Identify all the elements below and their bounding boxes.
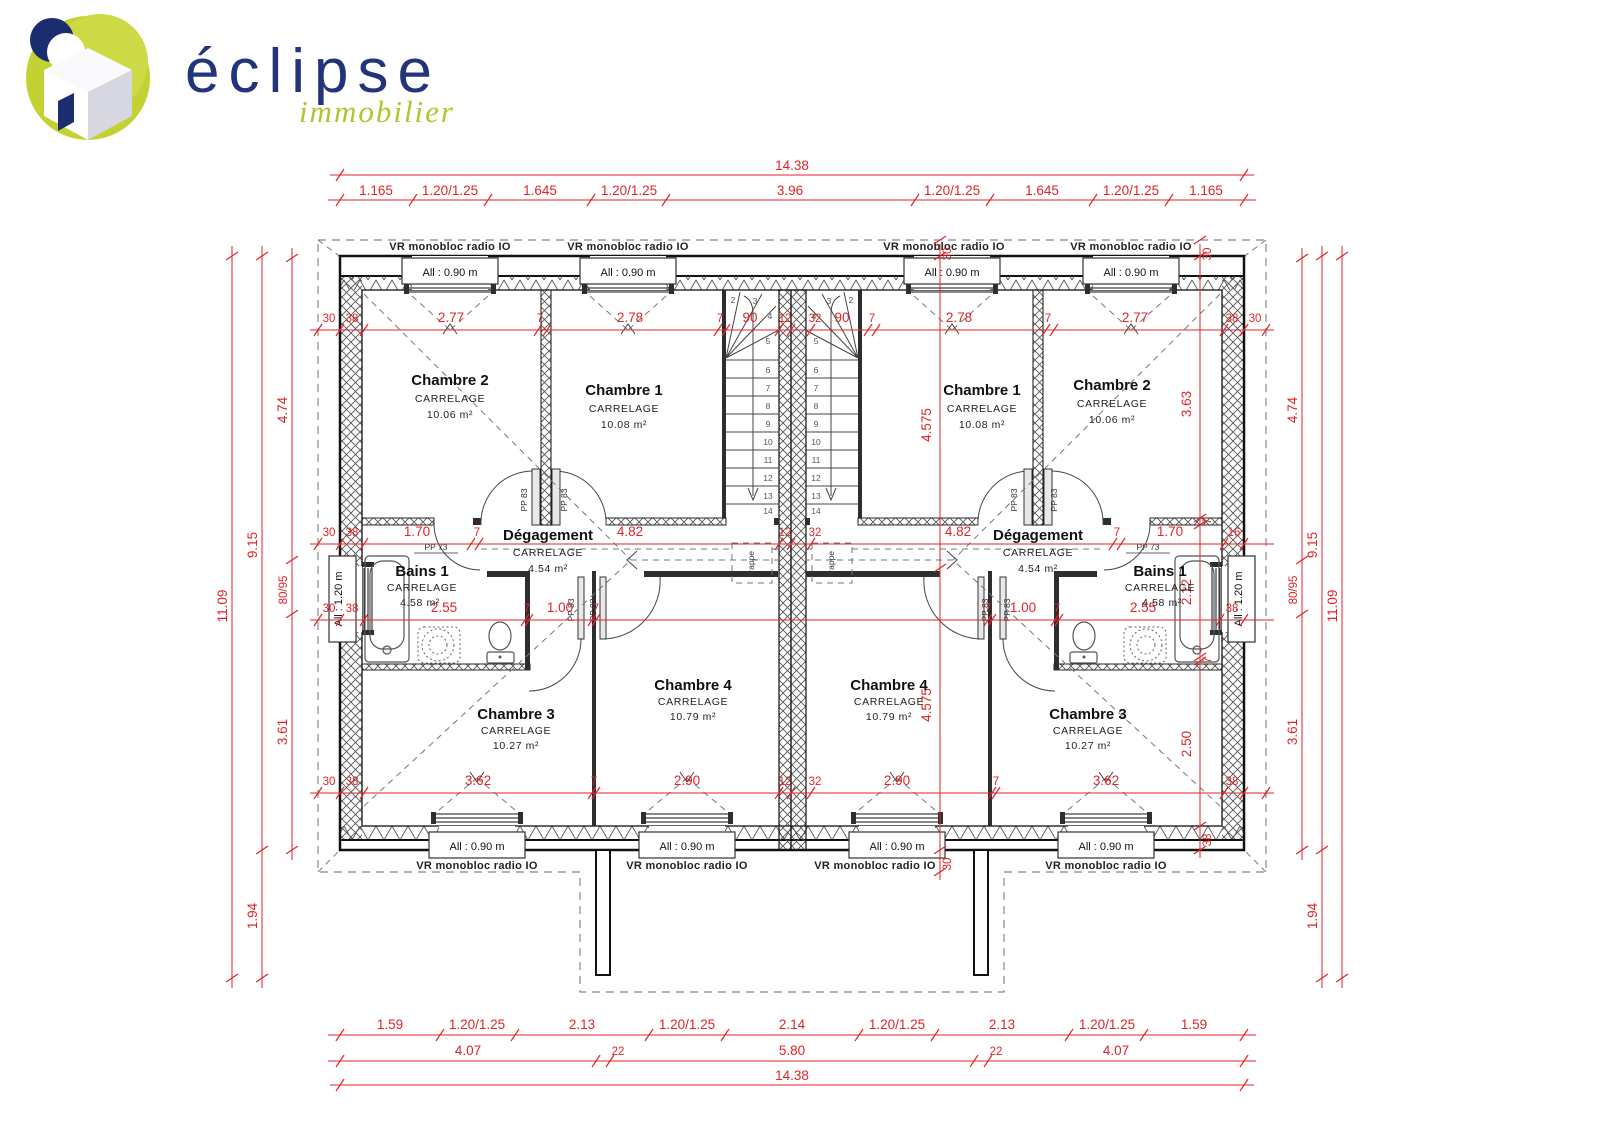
dim: 2.14 [779, 1017, 806, 1032]
stair-tread-number: 11 [812, 455, 821, 465]
room-area: 4.54 m² [528, 563, 568, 575]
room-area: 10.79 m² [670, 711, 716, 723]
stair-tread-number: 12 [763, 473, 773, 483]
staircase-right: 2 3 4 5 6 7 8 9 10 11 12 13 14 [805, 292, 858, 516]
room-finish: CARRELAGE [481, 725, 551, 737]
stair-tread-number: 3 [827, 296, 832, 306]
dim: 7 [524, 603, 530, 615]
stair-tread-number: 10 [763, 437, 773, 447]
dim: 9.15 [1305, 532, 1320, 558]
room-area: 4.58 m² [400, 597, 440, 609]
bains-bottom-wall-right [1054, 664, 1222, 670]
dim: 12 [779, 313, 792, 325]
room-chambre3-right: Chambre 3 CARRELAGE 10.27 m² [1049, 706, 1127, 752]
dim: 38 [346, 527, 359, 539]
stair-tread-number: 9 [766, 419, 771, 429]
stair-tread-number: 14 [811, 506, 821, 516]
room-area: 4.54 m² [1018, 563, 1058, 575]
window-sill-label: All : 0.90 m [659, 841, 714, 853]
stair-tread-number: 3 [753, 296, 758, 306]
partition-ch2-ch1-right [1033, 290, 1043, 525]
dim: 30 [1202, 248, 1214, 261]
window-sill-label: All : 0.90 m [422, 267, 477, 279]
stair-tread-number: 12 [811, 473, 821, 483]
door-tag: PP 83 [559, 488, 569, 511]
wall-right [1222, 256, 1244, 850]
room-chambre2-right: Chambre 2 CARRELAGE 10.06 m² [1073, 377, 1151, 426]
dim: 12 [779, 527, 792, 539]
room-name: Chambre 1 [943, 382, 1021, 399]
dim: 1.20/1.25 [449, 1017, 505, 1032]
dim: 1.645 [1025, 183, 1059, 198]
room-degagement-right: Dégagement CARRELAGE 4.54 m² [993, 527, 1083, 575]
washbasin [422, 629, 454, 661]
dim: 2.13 [569, 1017, 595, 1032]
room-finish: CARRELAGE [658, 696, 728, 708]
stair-tread-number: 10 [811, 437, 821, 447]
dim: 11.09 [1325, 590, 1340, 623]
dim: 4.07 [455, 1043, 481, 1058]
dim: 1.20/1.25 [659, 1017, 715, 1032]
dim: 1.00 [1010, 600, 1036, 615]
dim: 32 [809, 776, 822, 788]
dim: 1.70 [404, 524, 430, 539]
room-name: Bains 1 [1133, 563, 1186, 580]
dim: 1.00 [547, 600, 573, 615]
room-chambre4-left: Chambre 4 CARRELAGE 10.79 m² [654, 677, 732, 723]
logo-tagline-text: immobilier [299, 94, 455, 129]
dim: 3.61 [275, 719, 290, 745]
dim: 38 [1226, 313, 1239, 325]
dim: 1.94 [1305, 902, 1320, 929]
washbasin [1130, 629, 1162, 661]
dim: 22 [612, 1046, 625, 1058]
door-leaf [1024, 469, 1032, 525]
dim: 30 [323, 603, 336, 615]
dim: 7 [869, 313, 875, 325]
room-finish: CARRELAGE [589, 403, 659, 415]
dim: 4.575 [919, 408, 934, 442]
window-sill-label: All : 0.90 m [600, 267, 655, 279]
room-name: Chambre 2 [1073, 377, 1151, 394]
dim: 30 [942, 248, 954, 261]
shutter-label: VR monobloc radio IO [389, 241, 511, 253]
room-finish: CARRELAGE [1125, 582, 1195, 594]
stair-tread-number: 13 [811, 491, 821, 501]
room-area: 10.06 m² [427, 409, 473, 421]
dim-overall-width: 14.38 [775, 1068, 809, 1083]
dim: 7 [993, 776, 999, 788]
dim: 3.62 [465, 773, 491, 788]
room-name: Bains 1 [395, 563, 448, 580]
porch-post-right [974, 850, 988, 975]
window-sill-label: All : 0.90 m [924, 267, 979, 279]
party-wall [779, 290, 806, 850]
dim: 7 [1202, 657, 1214, 663]
toilet [489, 622, 511, 650]
stair-tread-number: 5 [766, 336, 771, 346]
stair-tread-number: 14 [763, 506, 773, 516]
stair-tread-number: 5 [814, 336, 819, 346]
stair-tread-number: 2 [731, 295, 736, 305]
floor-plan-page: éclipse immobilier [0, 0, 1600, 1131]
dim: 38 [346, 603, 359, 615]
dim: 3.62 [1093, 773, 1119, 788]
stair-tread-number: 13 [763, 491, 773, 501]
wall-left [340, 256, 362, 850]
room-chambre2-left: Chambre 2 CARRELAGE 10.06 m² [411, 372, 489, 421]
trappe-label: trappe [746, 551, 756, 575]
dim: 1.20/1.25 [1079, 1017, 1135, 1032]
window-sill-label: All : 0.90 m [869, 841, 924, 853]
room-name: Chambre 4 [654, 677, 732, 694]
dim: 4.74 [275, 396, 290, 423]
dim: 1.94 [245, 902, 260, 929]
room-name: Chambre 2 [411, 372, 489, 389]
porch-post-left [596, 850, 610, 975]
window: All : 0.90 m VR monobloc radio IO [814, 772, 945, 872]
dim: 7 [985, 603, 991, 615]
room-finish: CARRELAGE [1003, 547, 1073, 559]
room-name: Dégagement [993, 527, 1083, 544]
dim: 12 [779, 776, 792, 788]
dim: 1.20/1.25 [924, 183, 980, 198]
room-name: Chambre 4 [850, 677, 928, 694]
stair-tread-number: 6 [814, 365, 819, 375]
dim: 30 [323, 527, 336, 539]
dim: 2.90 [674, 773, 700, 788]
room-area: 10.08 m² [959, 419, 1005, 431]
stair-tread-number: 9 [814, 419, 819, 429]
dim: 30 [323, 776, 336, 788]
dim: 38 [1226, 603, 1239, 615]
room-area: 10.27 m² [493, 740, 539, 752]
staircase-left: 2 3 4 5 6 7 8 9 10 11 12 13 14 [726, 292, 779, 516]
dim: 1.59 [1181, 1017, 1207, 1032]
room-finish: CARRELAGE [947, 403, 1017, 415]
room-finish: CARRELAGE [415, 393, 485, 405]
dim: 80/95 [278, 576, 290, 605]
dim: 1.20/1.25 [869, 1017, 925, 1032]
room-chambre1-left: Chambre 1 CARRELAGE 10.08 m² [585, 382, 663, 431]
room-area: 10.06 m² [1089, 414, 1135, 426]
dim: 90 [834, 310, 849, 325]
room-area: 4.58 m² [1142, 597, 1182, 609]
room-finish: CARRELAGE [1053, 725, 1123, 737]
window-sill-label: All : 0.90 m [449, 841, 504, 853]
room-finish: CARRELAGE [513, 547, 583, 559]
dim: 7 [537, 313, 543, 325]
dim: 5.80 [779, 1043, 805, 1058]
stair-tread-number: 6 [766, 365, 771, 375]
dim: 7 [1054, 603, 1060, 615]
dim: 30 [1249, 313, 1262, 325]
stair-tread-number: 11 [764, 455, 773, 465]
dim: 4.82 [945, 524, 971, 539]
dim: 1.20/1.25 [422, 183, 478, 198]
dim: 4.07 [1103, 1043, 1129, 1058]
stair-tread-number: 8 [814, 401, 819, 411]
dim: 2.77 [1122, 310, 1148, 325]
dim: 1.165 [1189, 183, 1223, 198]
dim-overall-width: 14.38 [775, 158, 809, 173]
dim: 1.70 [1157, 524, 1183, 539]
room-name: Dégagement [503, 527, 593, 544]
dim: 1.20/1.25 [601, 183, 657, 198]
door-tag: PP 83 [1049, 488, 1059, 511]
door-tag: PP 83 [519, 488, 529, 511]
shutter-label: VR monobloc radio IO [416, 860, 538, 872]
dim: 2.78 [946, 310, 972, 325]
dim: 2.77 [438, 310, 464, 325]
dim: 7 [474, 527, 480, 539]
room-chambre4-right: Chambre 4 CARRELAGE 10.79 m² [850, 677, 928, 723]
dim: 3.61 [1285, 719, 1300, 745]
stair-tread-number: 7 [766, 383, 771, 393]
room-chambre3-left: Chambre 3 CARRELAGE 10.27 m² [477, 706, 555, 752]
dim: 38 [346, 776, 359, 788]
dim: 7 [593, 603, 599, 615]
window-sill-label: All : 1.20 m [1233, 571, 1245, 626]
dim: 30 [942, 858, 954, 871]
dim: 11.09 [215, 590, 230, 623]
window-sill-label: All : 1.20 m [333, 571, 345, 626]
room-finish: CARRELAGE [1077, 398, 1147, 410]
dim: 2.90 [884, 773, 910, 788]
door-leaf [578, 577, 584, 639]
dim: 4.74 [1285, 396, 1300, 423]
dim: 3.96 [777, 183, 803, 198]
dim: 1.165 [359, 183, 393, 198]
dim: 22 [990, 1046, 1003, 1058]
room-name: Chambre 3 [477, 706, 555, 723]
shutter-label: VR monobloc radio IO [626, 860, 748, 872]
dim: 38 [346, 313, 359, 325]
dim: 2.13 [989, 1017, 1015, 1032]
room-area: 10.79 m² [866, 711, 912, 723]
room-finish: CARRELAGE [854, 696, 924, 708]
dim: 1.20/1.25 [1103, 183, 1159, 198]
room-area: 10.08 m² [601, 419, 647, 431]
dim: 3.63 [1179, 391, 1194, 417]
dim: 32 [809, 313, 822, 325]
stair-tread-number: 7 [814, 383, 819, 393]
window: All : 1.20 m [1210, 556, 1255, 642]
shutter-label: VR monobloc radio IO [1070, 241, 1192, 253]
dim: 80/95 [1288, 576, 1300, 605]
dim: 7 [1045, 313, 1051, 325]
stair-tread-number: 4 [768, 311, 773, 321]
dim: 90 [742, 310, 757, 325]
stair-tread-number: 8 [766, 401, 771, 411]
door-leaf [532, 469, 540, 525]
eclipse-logo: éclipse immobilier [26, 14, 455, 140]
dim: 2.50 [1179, 731, 1194, 757]
window: All : 1.20 m [329, 556, 374, 642]
room-finish: CARRELAGE [387, 582, 457, 594]
window-sill-label: All : 0.90 m [1103, 267, 1158, 279]
dim: 32 [809, 527, 822, 539]
shutter-label: VR monobloc radio IO [814, 860, 936, 872]
shutter-label: VR monobloc radio IO [567, 241, 689, 253]
dim: 1.645 [523, 183, 557, 198]
room-chambre1-right: Chambre 1 CARRELAGE 10.08 m² [943, 382, 1021, 431]
dim: 7 [717, 313, 723, 325]
dim: 30 [323, 313, 336, 325]
room-name: Chambre 3 [1049, 706, 1127, 723]
window-sill-label: All : 0.90 m [1078, 841, 1133, 853]
dim: 7 [1114, 527, 1120, 539]
dim: 7 [591, 776, 597, 788]
dim: 4.82 [617, 524, 643, 539]
room-name: Chambre 1 [585, 382, 663, 399]
trappe-label: trappe [826, 551, 836, 575]
bains-bottom-wall-left [362, 664, 530, 670]
room-area: 10.27 m² [1065, 740, 1111, 752]
dim: 38 [1202, 834, 1214, 847]
dim: 2.78 [617, 310, 643, 325]
toilet [1073, 622, 1095, 650]
shutter-label: VR monobloc radio IO [1045, 860, 1167, 872]
floor-plan-drawing: éclipse immobilier [0, 0, 1600, 1131]
dim: 38 [1226, 776, 1239, 788]
dim: 1.59 [377, 1017, 403, 1032]
dim: 7 [1202, 518, 1214, 524]
stair-tread-number: 2 [849, 295, 854, 305]
dim: 9.15 [245, 532, 260, 558]
ch4-top-wall-left [644, 571, 778, 577]
room-degagement-left: Dégagement CARRELAGE 4.54 m² [503, 527, 593, 575]
dim: 16 [1228, 527, 1241, 539]
stairwell-wall-right [858, 290, 862, 518]
